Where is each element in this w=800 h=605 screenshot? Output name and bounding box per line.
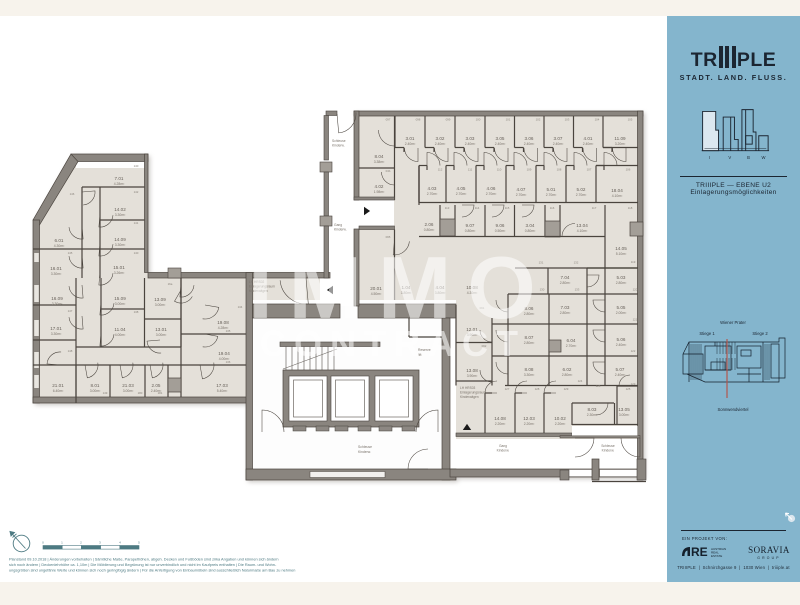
svg-text:103: 103 bbox=[565, 118, 570, 122]
svg-text:I: I bbox=[709, 155, 710, 160]
svg-text:4.05: 4.05 bbox=[457, 186, 466, 191]
svg-text:Gang: Gang bbox=[499, 444, 507, 448]
svg-text:5.02: 5.02 bbox=[577, 187, 586, 192]
svg-text:13.08: 13.08 bbox=[466, 368, 478, 373]
svg-text:2.40m²: 2.40m² bbox=[583, 142, 594, 146]
svg-text:V: V bbox=[728, 155, 731, 160]
svg-text:3.30m²: 3.30m² bbox=[524, 373, 535, 377]
svg-text:Schleuse: Schleuse bbox=[332, 139, 346, 143]
svg-text:105: 105 bbox=[628, 118, 633, 122]
svg-text:18.04: 18.04 bbox=[611, 188, 623, 193]
svg-text:4.10m²: 4.10m² bbox=[612, 194, 623, 198]
svg-text:2.00m²: 2.00m² bbox=[616, 311, 627, 315]
svg-text:14.09: 14.09 bbox=[114, 237, 126, 242]
svg-text:2.80m²: 2.80m² bbox=[560, 281, 571, 285]
svg-text:4.03: 4.03 bbox=[428, 186, 437, 191]
svg-text:8.01: 8.01 bbox=[91, 383, 100, 388]
svg-text:6.01: 6.01 bbox=[55, 238, 64, 243]
svg-text:128: 128 bbox=[535, 387, 540, 391]
svg-text:16a: 16a bbox=[168, 282, 173, 286]
svg-text:4.10m²: 4.10m² bbox=[577, 229, 588, 233]
svg-text:Kinderw.: Kinderw. bbox=[358, 450, 371, 454]
svg-text:2.40m²: 2.40m² bbox=[495, 142, 506, 146]
svg-text:149: 149 bbox=[103, 391, 108, 395]
svg-text:113: 113 bbox=[445, 206, 450, 210]
svg-text:7.04: 7.04 bbox=[561, 275, 570, 280]
svg-text:13.05: 13.05 bbox=[618, 407, 630, 412]
svg-text:Planstand 09.10.2018 | Änderun: Planstand 09.10.2018 | Änderungen vorbeh… bbox=[9, 558, 279, 562]
svg-text:2.70m²: 2.70m² bbox=[427, 192, 438, 196]
svg-text:109: 109 bbox=[527, 168, 532, 172]
svg-text:132: 132 bbox=[574, 261, 579, 265]
svg-text:5: 5 bbox=[138, 541, 140, 545]
svg-text:3.20m²: 3.20m² bbox=[615, 142, 626, 146]
svg-text:2.40m²: 2.40m² bbox=[465, 142, 476, 146]
svg-text:ESTATE: ESTATE bbox=[711, 554, 722, 558]
svg-text:4.01: 4.01 bbox=[584, 136, 593, 141]
svg-text:5.01: 5.01 bbox=[547, 187, 556, 192]
svg-text:119: 119 bbox=[631, 260, 636, 264]
svg-text:2.70m²: 2.70m² bbox=[516, 193, 527, 197]
svg-text:3.00m²: 3.00m² bbox=[123, 389, 134, 393]
svg-text:0: 0 bbox=[42, 541, 44, 545]
svg-text:Einlagerungsraum: Einlagerungsraum bbox=[460, 391, 486, 395]
svg-text:2.40m²: 2.40m² bbox=[151, 389, 162, 393]
svg-text:102: 102 bbox=[536, 118, 541, 122]
svg-text:2.70m²: 2.70m² bbox=[566, 344, 577, 348]
svg-text:141: 141 bbox=[134, 221, 139, 225]
svg-text:11.04: 11.04 bbox=[114, 327, 126, 332]
svg-text:10.02: 10.02 bbox=[554, 416, 566, 421]
svg-text:3.03: 3.03 bbox=[466, 136, 475, 141]
svg-text:5.06: 5.06 bbox=[617, 337, 626, 342]
svg-text:19.08: 19.08 bbox=[217, 320, 229, 325]
svg-text:21.03: 21.03 bbox=[122, 383, 134, 388]
svg-text:5.03: 5.03 bbox=[617, 275, 626, 280]
svg-text:CONTRACT: CONTRACT bbox=[260, 323, 526, 364]
svg-text:124: 124 bbox=[578, 379, 583, 383]
svg-text:9.06: 9.06 bbox=[496, 223, 505, 228]
svg-text:5.40m²: 5.40m² bbox=[217, 389, 228, 393]
svg-text:0.80m²: 0.80m² bbox=[424, 228, 435, 232]
svg-text:12.03: 12.03 bbox=[523, 416, 535, 421]
svg-text:13.09: 13.09 bbox=[154, 297, 166, 302]
svg-text:4.30m²: 4.30m² bbox=[54, 244, 65, 248]
svg-text:2.20m²: 2.20m² bbox=[555, 422, 566, 426]
svg-text:0.50m²: 0.50m² bbox=[495, 229, 506, 233]
svg-text:B: B bbox=[747, 155, 750, 160]
svg-text:3.05: 3.05 bbox=[496, 136, 505, 141]
svg-text:2.40m²: 2.40m² bbox=[405, 142, 416, 146]
svg-text:2.70m²: 2.70m² bbox=[486, 192, 497, 196]
svg-text:17.01: 17.01 bbox=[50, 326, 62, 331]
svg-text:ungsgrößen sind ungefähre Wert: ungsgrößen sind ungefähre Werte und könn… bbox=[9, 569, 295, 573]
svg-text:4.06: 4.06 bbox=[487, 186, 496, 191]
svg-text:8.04: 8.04 bbox=[375, 154, 384, 159]
svg-text:Wiener Prater: Wiener Prater bbox=[720, 320, 746, 325]
svg-text:4.07: 4.07 bbox=[517, 187, 526, 192]
svg-text:4.28m²: 4.28m² bbox=[218, 326, 229, 330]
svg-text:118: 118 bbox=[628, 206, 633, 210]
svg-text:3.00m²: 3.00m² bbox=[90, 389, 101, 393]
svg-text:2.80m²: 2.80m² bbox=[616, 281, 627, 285]
svg-text:5.05: 5.05 bbox=[617, 305, 626, 310]
svg-text:123: 123 bbox=[631, 382, 636, 386]
svg-text:0.80m²: 0.80m² bbox=[465, 229, 476, 233]
svg-text:3.04: 3.04 bbox=[526, 223, 535, 228]
svg-text:15.01: 15.01 bbox=[113, 265, 125, 270]
svg-text:13.01: 13.01 bbox=[155, 327, 167, 332]
svg-text:134: 134 bbox=[238, 305, 243, 309]
svg-text:180: 180 bbox=[138, 391, 143, 395]
svg-text:RE: RE bbox=[691, 545, 708, 559]
svg-text:6.04: 6.04 bbox=[567, 338, 576, 343]
svg-text:3.38m²: 3.38m² bbox=[374, 160, 385, 164]
svg-text:8.03: 8.03 bbox=[588, 407, 597, 412]
svg-text:4: 4 bbox=[119, 541, 121, 545]
svg-text:Gang: Gang bbox=[334, 223, 342, 227]
svg-text:3.01: 3.01 bbox=[406, 136, 415, 141]
svg-text:107: 107 bbox=[587, 168, 592, 172]
svg-text:099: 099 bbox=[446, 118, 451, 122]
svg-text:3.02: 3.02 bbox=[436, 136, 445, 141]
svg-text:3.30m²: 3.30m² bbox=[51, 332, 62, 336]
svg-text:2.80m²: 2.80m² bbox=[560, 311, 571, 315]
svg-text:116: 116 bbox=[550, 206, 555, 210]
svg-text:7.03: 7.03 bbox=[561, 305, 570, 310]
svg-text:2.70m²: 2.70m² bbox=[576, 193, 587, 197]
svg-text:2.40m²: 2.40m² bbox=[616, 343, 627, 347]
svg-text:106: 106 bbox=[626, 168, 631, 172]
svg-text:114: 114 bbox=[475, 206, 480, 210]
svg-text:142: 142 bbox=[134, 190, 139, 194]
svg-text:14.05: 14.05 bbox=[615, 246, 627, 251]
svg-text:16.09: 16.09 bbox=[51, 296, 63, 301]
svg-text:122: 122 bbox=[631, 349, 636, 353]
svg-text:Schleuse: Schleuse bbox=[601, 444, 615, 448]
svg-text:2: 2 bbox=[80, 541, 82, 545]
svg-text:04b: 04b bbox=[386, 169, 391, 173]
svg-text:19.04: 19.04 bbox=[218, 351, 230, 356]
svg-text:Kinderw.: Kinderw. bbox=[497, 449, 510, 453]
svg-text:Schleuse: Schleuse bbox=[358, 445, 372, 449]
svg-text:4.00m²: 4.00m² bbox=[219, 357, 230, 361]
svg-text:11.09: 11.09 bbox=[614, 136, 626, 141]
svg-text:17.03: 17.03 bbox=[216, 383, 228, 388]
svg-text:Kinderw.: Kinderw. bbox=[602, 449, 615, 453]
svg-text:LH HRS03: LH HRS03 bbox=[460, 386, 475, 390]
svg-text:101: 101 bbox=[506, 118, 511, 122]
svg-text:3.30m²: 3.30m² bbox=[52, 302, 63, 306]
svg-text:5.10m²: 5.10m² bbox=[616, 252, 627, 256]
svg-text:Kinderwägen: Kinderwägen bbox=[460, 395, 479, 399]
svg-text:13.04: 13.04 bbox=[576, 223, 588, 228]
svg-text:14.08: 14.08 bbox=[494, 416, 506, 421]
svg-text:138: 138 bbox=[134, 310, 139, 314]
svg-text:6.02: 6.02 bbox=[563, 367, 572, 372]
svg-text:4.02: 4.02 bbox=[375, 184, 384, 189]
svg-text:3.30m²: 3.30m² bbox=[115, 243, 126, 247]
svg-text:4.00m²: 4.00m² bbox=[115, 333, 126, 337]
svg-text:140: 140 bbox=[134, 251, 139, 255]
svg-text:6.40m²: 6.40m² bbox=[53, 389, 64, 393]
svg-text:3.00m²: 3.00m² bbox=[155, 303, 166, 307]
svg-text:126: 126 bbox=[596, 384, 601, 388]
svg-text:1: 1 bbox=[61, 541, 63, 545]
svg-text:2.70m²: 2.70m² bbox=[456, 192, 467, 196]
svg-text:Kinderw.: Kinderw. bbox=[332, 144, 345, 148]
svg-text:Stiege 1: Stiege 1 bbox=[699, 331, 715, 336]
svg-text:W: W bbox=[761, 155, 765, 160]
svg-text:2.70m²: 2.70m² bbox=[546, 193, 557, 197]
svg-text:sich noch ändern | Deckenlehrh: sich noch ändern | Deckenlehrhöhe ca. 1,… bbox=[9, 563, 277, 567]
svg-text:9.07: 9.07 bbox=[466, 223, 475, 228]
svg-text:3.06: 3.06 bbox=[525, 136, 534, 141]
svg-text:100: 100 bbox=[476, 118, 481, 122]
svg-text:2.40m²: 2.40m² bbox=[615, 373, 626, 377]
svg-text:104: 104 bbox=[595, 118, 600, 122]
svg-text:2.05: 2.05 bbox=[152, 383, 161, 388]
svg-text:110: 110 bbox=[497, 168, 502, 172]
svg-text:3.90m²: 3.90m² bbox=[467, 374, 478, 378]
svg-text:2.40m²: 2.40m² bbox=[435, 142, 446, 146]
svg-text:2.30m²: 2.30m² bbox=[587, 413, 598, 417]
svg-text:16.01: 16.01 bbox=[50, 266, 62, 271]
svg-text:129: 129 bbox=[564, 387, 569, 391]
svg-text:2.20m²: 2.20m² bbox=[524, 422, 535, 426]
svg-text:21.01: 21.01 bbox=[52, 383, 64, 388]
svg-text:115: 115 bbox=[505, 206, 510, 210]
svg-text:108: 108 bbox=[557, 168, 562, 172]
svg-text:2.40m²: 2.40m² bbox=[524, 142, 535, 146]
svg-text:3.07: 3.07 bbox=[554, 136, 563, 141]
svg-text:14.02: 14.02 bbox=[114, 207, 126, 212]
svg-text:3.30m²: 3.30m² bbox=[51, 272, 62, 276]
svg-text:098: 098 bbox=[416, 118, 421, 122]
svg-text:1.98m²: 1.98m² bbox=[374, 190, 385, 194]
svg-text:3.26m²: 3.26m² bbox=[114, 271, 125, 275]
svg-text:097: 097 bbox=[386, 118, 391, 122]
svg-text:2.40m²: 2.40m² bbox=[553, 142, 564, 146]
svg-text:Stiege 2: Stiege 2 bbox=[752, 331, 768, 336]
svg-text:8.08: 8.08 bbox=[525, 367, 534, 372]
svg-text:3.00m²: 3.00m² bbox=[115, 302, 126, 306]
svg-text:120: 120 bbox=[633, 288, 638, 292]
svg-text:146: 146 bbox=[70, 192, 75, 196]
svg-text:2.20m²: 2.20m² bbox=[495, 422, 506, 426]
svg-text:3.00m²: 3.00m² bbox=[619, 413, 630, 417]
svg-text:147: 147 bbox=[68, 309, 73, 313]
svg-text:4.28m²: 4.28m² bbox=[114, 182, 125, 186]
svg-text:3: 3 bbox=[99, 541, 101, 545]
svg-text:2.06: 2.06 bbox=[425, 222, 434, 227]
svg-text:145: 145 bbox=[68, 251, 73, 255]
svg-text:3.30m²: 3.30m² bbox=[115, 213, 126, 217]
svg-text:15.09: 15.09 bbox=[114, 296, 126, 301]
svg-text:Sonnwendviertel: Sonnwendviertel bbox=[718, 407, 749, 412]
svg-text:127: 127 bbox=[505, 387, 510, 391]
svg-text:5.07: 5.07 bbox=[616, 367, 625, 372]
svg-text:3.00m²: 3.00m² bbox=[156, 333, 167, 337]
svg-text:148: 148 bbox=[68, 349, 73, 353]
svg-text:7.01: 7.01 bbox=[115, 176, 124, 181]
svg-text:117: 117 bbox=[592, 206, 597, 210]
svg-text:125: 125 bbox=[626, 387, 631, 391]
svg-text:111: 111 bbox=[468, 168, 473, 172]
svg-text:140: 140 bbox=[134, 164, 139, 168]
svg-text:0.80m²: 0.80m² bbox=[525, 229, 536, 233]
svg-text:121: 121 bbox=[633, 318, 638, 322]
svg-text:2.80m²: 2.80m² bbox=[562, 373, 573, 377]
svg-text:112: 112 bbox=[438, 168, 443, 172]
svg-text:133: 133 bbox=[575, 288, 580, 292]
svg-text:Kinderw.: Kinderw. bbox=[334, 228, 347, 232]
